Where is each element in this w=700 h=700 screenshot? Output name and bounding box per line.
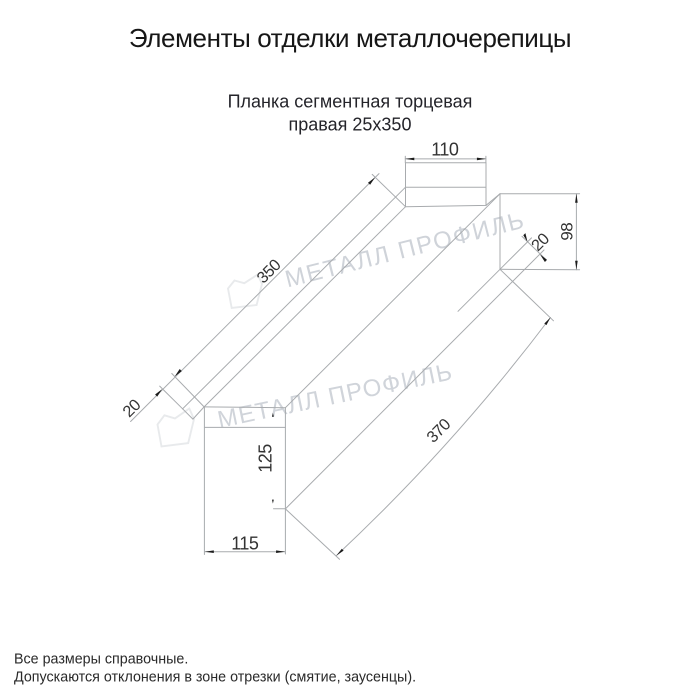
svg-text:370: 370 bbox=[423, 415, 454, 446]
svg-text:20: 20 bbox=[119, 396, 144, 421]
svg-text:правая 25х350: правая 25х350 bbox=[289, 114, 412, 134]
svg-text:Элементы отделки металлочерепи: Элементы отделки металлочерепицы bbox=[129, 23, 571, 53]
svg-text:125: 125 bbox=[255, 444, 275, 473]
svg-text:Планка сегментная торцевая: Планка сегментная торцевая bbox=[228, 92, 473, 112]
svg-text:Допускаются отклонения в зоне: Допускаются отклонения в зоне отрезки (с… bbox=[14, 669, 416, 685]
svg-text:Все размеры справочные.: Все размеры справочные. bbox=[14, 651, 188, 667]
svg-text:115: 115 bbox=[231, 533, 259, 553]
svg-text:20: 20 bbox=[528, 230, 553, 255]
svg-text:350: 350 bbox=[253, 256, 284, 287]
svg-text:98: 98 bbox=[558, 223, 577, 241]
svg-text:МЕТАЛЛ ПРОФИЛЬ: МЕТАЛЛ ПРОФИЛЬ bbox=[282, 207, 528, 294]
svg-text:110: 110 bbox=[431, 139, 459, 159]
svg-text:МЕТАЛЛ ПРОФИЛЬ: МЕТАЛЛ ПРОФИЛЬ bbox=[215, 358, 455, 433]
